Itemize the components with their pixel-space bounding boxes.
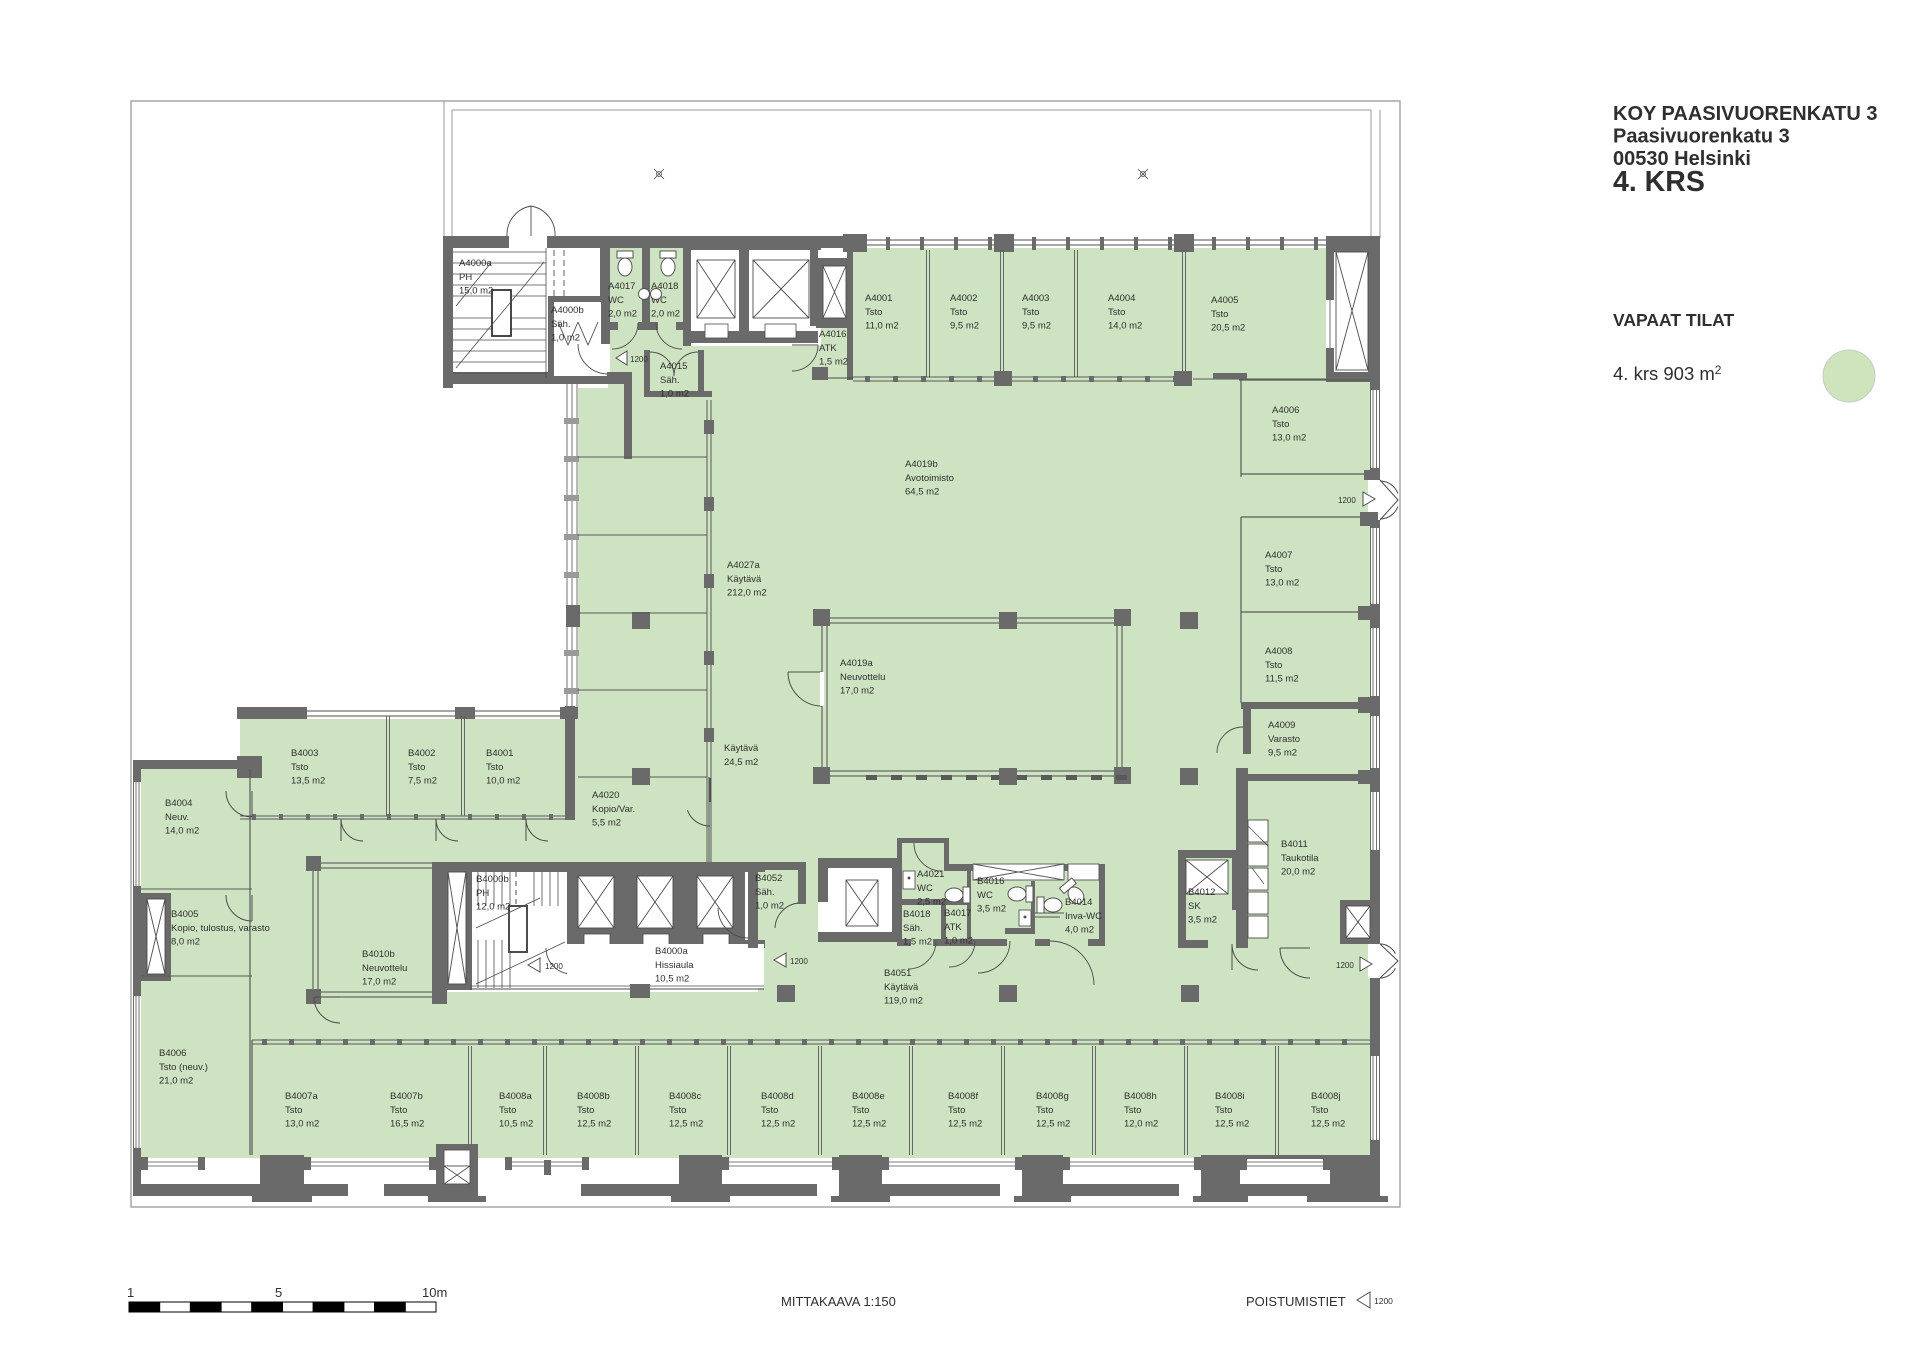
svg-text:POISTUMISTIET: POISTUMISTIET <box>1246 1294 1346 1309</box>
svg-text:1200: 1200 <box>630 355 648 364</box>
svg-text:VAPAAT TILAT: VAPAAT TILAT <box>1613 310 1734 330</box>
svg-text:1200: 1200 <box>1336 961 1354 970</box>
svg-text:4. krs 903 m2: 4. krs 903 m2 <box>1613 363 1722 384</box>
svg-text:1200: 1200 <box>790 957 808 966</box>
svg-text:KOY PAASIVUORENKATU 3: KOY PAASIVUORENKATU 3 <box>1613 103 1877 125</box>
svg-text:4. KRS: 4. KRS <box>1613 166 1705 198</box>
svg-text:A4009Varasto9,5 m2: A4009Varasto9,5 m2 <box>1268 720 1300 759</box>
svg-text:10m: 10m <box>422 1285 447 1300</box>
svg-text:Paasivuorenkatu 3: Paasivuorenkatu 3 <box>1613 126 1790 148</box>
svg-text:1200: 1200 <box>1374 1296 1393 1306</box>
svg-text:1: 1 <box>127 1285 134 1300</box>
svg-text:1200: 1200 <box>545 962 563 971</box>
svg-text:1200: 1200 <box>1338 496 1356 505</box>
svg-text:5: 5 <box>275 1285 282 1300</box>
svg-text:MITTAKAAVA 1:150: MITTAKAAVA 1:150 <box>781 1294 896 1309</box>
